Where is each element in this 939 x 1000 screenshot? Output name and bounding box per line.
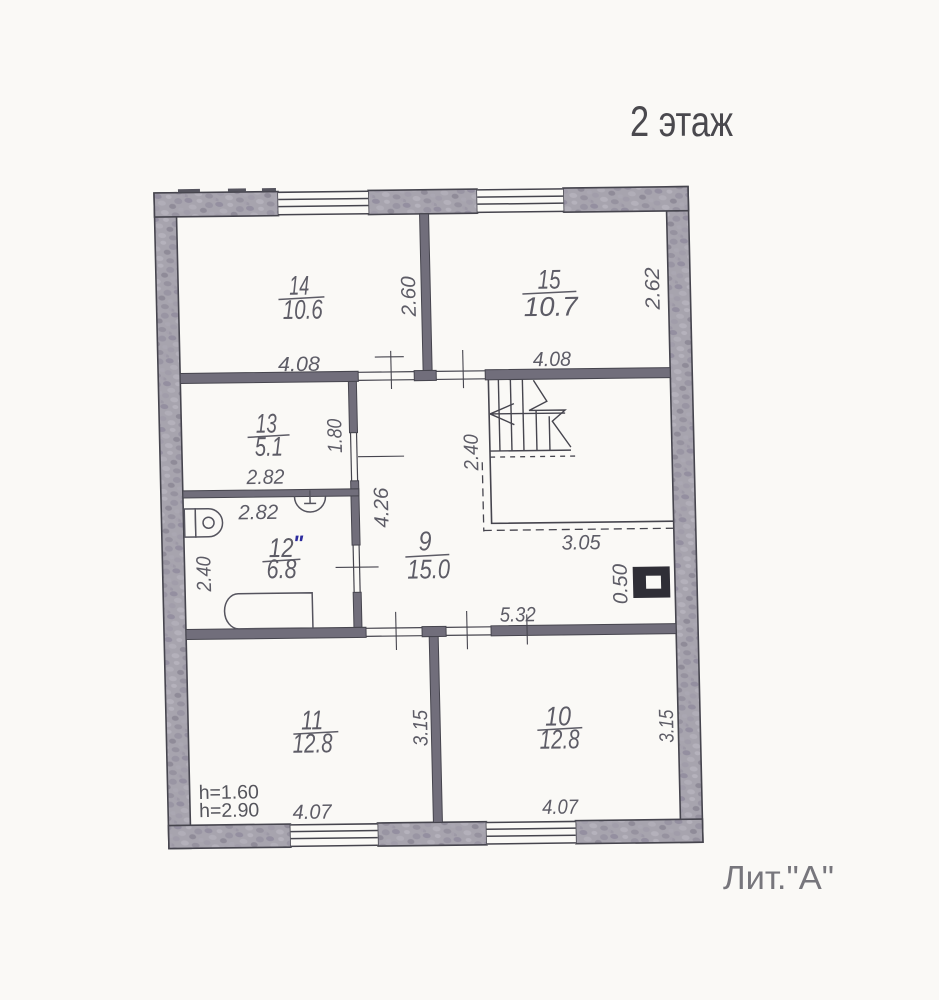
svg-text:2.40: 2.40 bbox=[192, 556, 216, 593]
svg-text:2.82: 2.82 bbox=[245, 466, 285, 490]
svg-text:6.8: 6.8 bbox=[266, 554, 297, 584]
svg-text:2.62: 2.62 bbox=[641, 267, 665, 311]
svg-text:4.08: 4.08 bbox=[533, 348, 572, 372]
svg-text:9: 9 bbox=[418, 526, 432, 556]
svg-text:12.8: 12.8 bbox=[292, 728, 333, 759]
svg-text:2.40: 2.40 bbox=[460, 434, 484, 472]
svg-text:4.07: 4.07 bbox=[292, 800, 333, 824]
svg-text:Лит."А": Лит."А" bbox=[723, 859, 834, 896]
svg-text:5.1: 5.1 bbox=[254, 432, 283, 462]
svg-text:10.7: 10.7 bbox=[523, 291, 579, 322]
svg-text:3.15: 3.15 bbox=[655, 709, 679, 743]
svg-text:15: 15 bbox=[537, 264, 561, 294]
svg-text:0.50: 0.50 bbox=[609, 563, 633, 604]
svg-text:15.0: 15.0 bbox=[407, 554, 451, 585]
svg-text:1.80: 1.80 bbox=[323, 418, 347, 453]
svg-text:4.08: 4.08 bbox=[278, 353, 321, 377]
svg-text:2.60: 2.60 bbox=[397, 276, 421, 318]
svg-text:3.15: 3.15 bbox=[409, 709, 433, 746]
svg-text:2 этаж: 2 этаж bbox=[630, 98, 733, 146]
svg-text:5.32: 5.32 bbox=[499, 603, 536, 626]
svg-text:h=2.90: h=2.90 bbox=[199, 799, 260, 822]
svg-text:4.07: 4.07 bbox=[542, 796, 580, 819]
svg-text:12.8: 12.8 bbox=[539, 724, 580, 755]
svg-text:4.26: 4.26 bbox=[370, 487, 394, 528]
svg-text:10.6: 10.6 bbox=[282, 294, 323, 325]
svg-text:2.82: 2.82 bbox=[237, 501, 279, 525]
svg-text:": " bbox=[293, 531, 305, 556]
svg-text:3.05: 3.05 bbox=[561, 531, 601, 555]
